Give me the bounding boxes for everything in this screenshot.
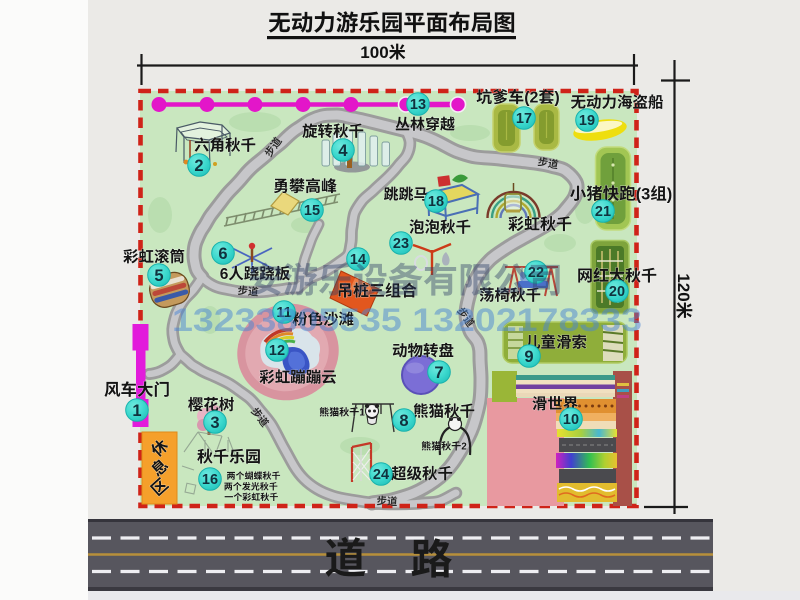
svg-text:100: 100 [360, 43, 388, 62]
svg-text:17: 17 [516, 111, 532, 127]
svg-text:8: 8 [399, 412, 408, 430]
svg-text:7: 7 [434, 364, 443, 382]
svg-text:19: 19 [579, 113, 595, 129]
svg-text:23: 23 [393, 236, 409, 252]
svg-text:120: 120 [674, 273, 693, 301]
svg-text:10: 10 [563, 412, 579, 428]
svg-text:13: 13 [410, 97, 426, 113]
svg-text:12: 12 [269, 343, 285, 359]
svg-text:20: 20 [609, 284, 625, 300]
svg-text:21: 21 [595, 204, 611, 220]
svg-text:): ) [554, 90, 559, 107]
svg-text:18: 18 [428, 194, 444, 210]
svg-text:1: 1 [132, 402, 141, 420]
svg-text:6: 6 [220, 266, 229, 283]
svg-text:4: 4 [338, 142, 348, 160]
svg-text:5: 5 [154, 267, 163, 285]
svg-text:6: 6 [218, 245, 227, 263]
svg-text:(2: (2 [524, 90, 538, 107]
svg-text:(3: (3 [636, 185, 651, 203]
svg-text:13233805535 13202178333: 13233805535 13202178333 [172, 302, 642, 338]
svg-text:15: 15 [304, 203, 320, 219]
svg-text:): ) [667, 185, 673, 203]
svg-text:9: 9 [524, 348, 533, 366]
svg-text:2: 2 [194, 157, 203, 175]
svg-text:2: 2 [461, 442, 467, 453]
svg-text:16: 16 [202, 472, 218, 488]
svg-text:3: 3 [210, 414, 219, 432]
svg-text:1: 1 [359, 408, 365, 419]
svg-text:24: 24 [373, 467, 389, 483]
